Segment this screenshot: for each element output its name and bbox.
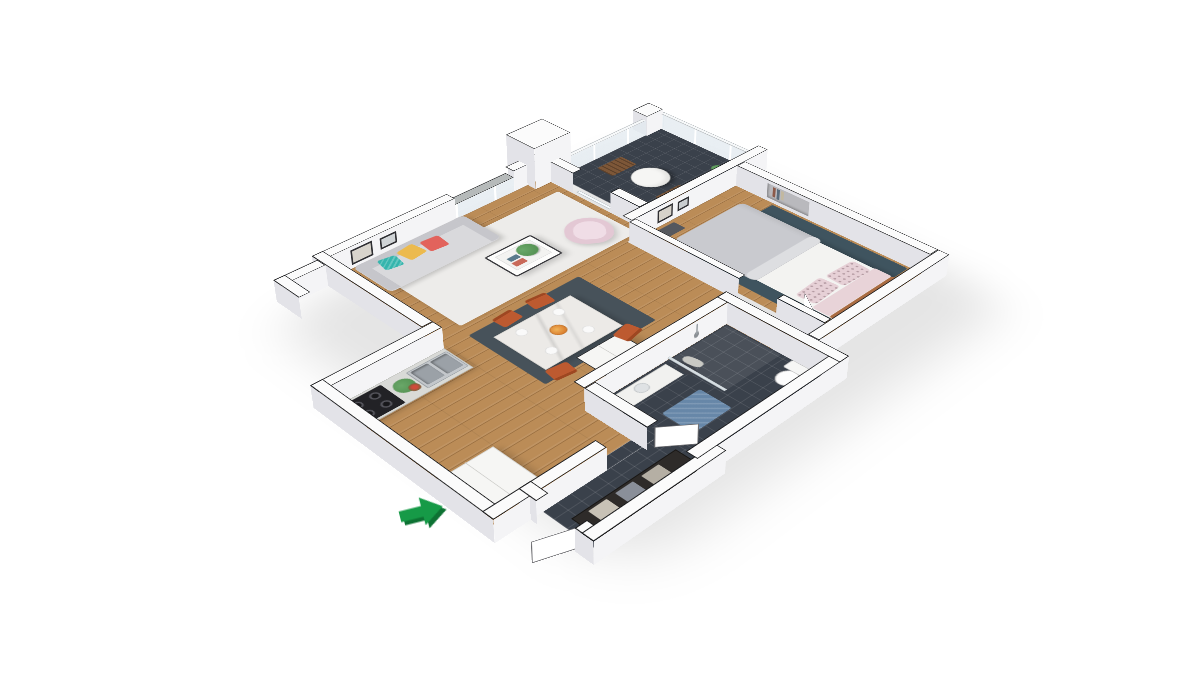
apartment-3d-floorplan: [0, 0, 1200, 675]
bedroom-wall-art-2: [678, 196, 689, 211]
bathroom-door-leaf: [654, 423, 699, 447]
niche-book-3: [781, 191, 784, 201]
floorplan-scene: [178, 117, 1055, 650]
